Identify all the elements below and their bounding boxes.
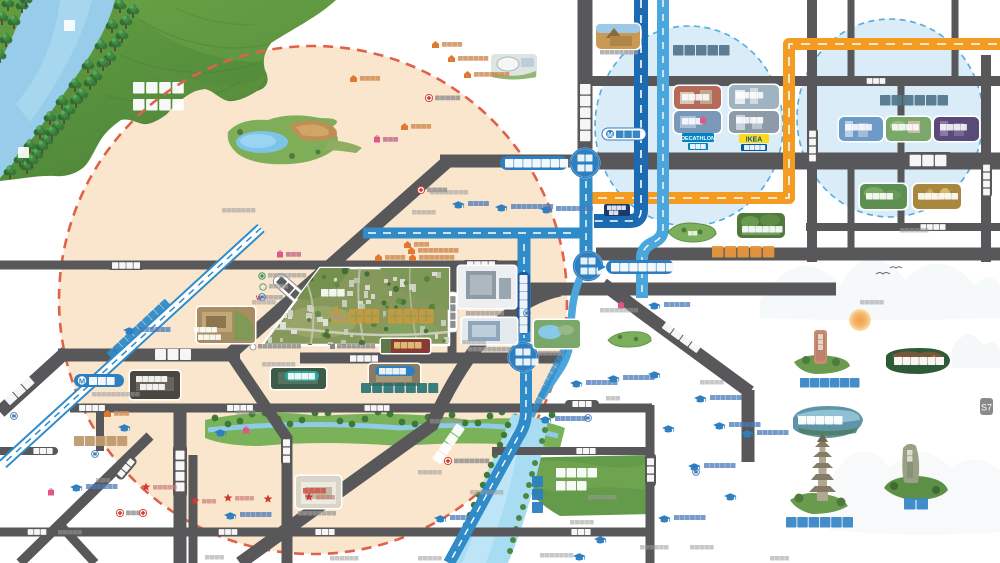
- svg-text:DECATHLON: DECATHLON: [681, 136, 715, 142]
- svg-text:IKEA: IKEA: [746, 137, 763, 144]
- svg-text:S7: S7: [981, 403, 992, 413]
- svg-text:M: M: [607, 132, 613, 139]
- svg-text:M: M: [79, 376, 85, 385]
